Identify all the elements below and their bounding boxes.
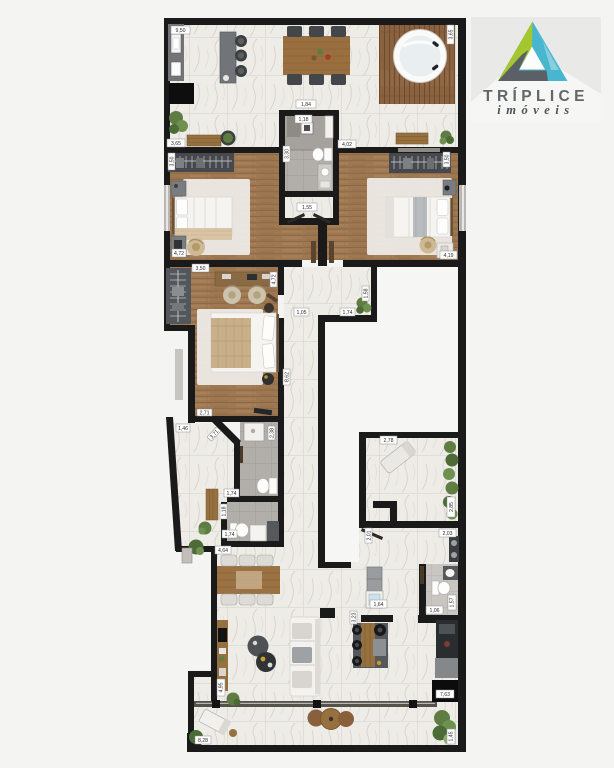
svg-text:2,38: 2,38	[270, 428, 276, 438]
svg-text:3,23: 3,23	[352, 612, 358, 622]
svg-text:7,63: 7,63	[440, 692, 450, 698]
svg-text:1,57: 1,57	[450, 597, 456, 607]
svg-text:3,30: 3,30	[285, 149, 291, 159]
svg-text:2,01: 2,01	[367, 530, 373, 540]
svg-text:4,64: 4,64	[218, 548, 228, 554]
svg-text:1,58: 1,58	[364, 288, 370, 298]
svg-text:1,46: 1,46	[178, 426, 188, 432]
svg-text:3,50: 3,50	[170, 156, 176, 166]
svg-text:8,28: 8,28	[198, 738, 208, 744]
svg-text:1,18: 1,18	[298, 117, 308, 123]
svg-text:3,65: 3,65	[449, 29, 455, 39]
svg-text:9,50: 9,50	[175, 28, 185, 34]
svg-text:1,55: 1,55	[302, 205, 312, 211]
svg-text:4,72: 4,72	[174, 251, 184, 257]
svg-text:1,05: 1,05	[296, 310, 306, 316]
svg-text:4,72: 4,72	[272, 274, 278, 284]
svg-text:8,62: 8,62	[285, 372, 291, 382]
svg-text:4,95: 4,95	[219, 682, 225, 692]
svg-text:imóveis: imóveis	[497, 103, 574, 117]
svg-text:4,02: 4,02	[342, 142, 352, 148]
svg-text:2,03: 2,03	[442, 531, 452, 537]
svg-text:1,74: 1,74	[342, 310, 352, 316]
svg-text:1,74: 1,74	[226, 491, 236, 497]
svg-text:1,06: 1,06	[429, 608, 439, 614]
svg-text:3,65: 3,65	[171, 141, 181, 147]
svg-text:1,18: 1,18	[222, 506, 228, 516]
svg-text:4,19: 4,19	[443, 253, 453, 259]
svg-text:1,64: 1,64	[373, 602, 383, 608]
svg-text:2,71: 2,71	[199, 411, 209, 417]
svg-text:3,50: 3,50	[445, 154, 451, 164]
svg-text:3,50: 3,50	[195, 266, 205, 272]
svg-text:2,85: 2,85	[449, 502, 455, 512]
svg-text:1,74: 1,74	[224, 532, 234, 538]
svg-text:1,84: 1,84	[301, 102, 311, 108]
svg-text:2,78: 2,78	[383, 438, 393, 444]
svg-text:1,45: 1,45	[449, 731, 455, 741]
